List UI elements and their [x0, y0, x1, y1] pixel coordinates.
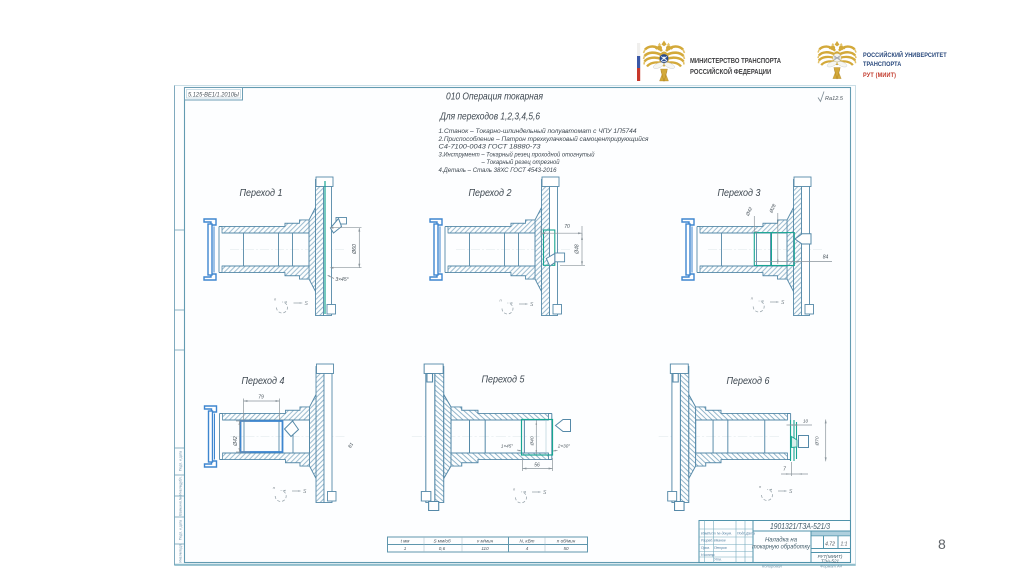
svg-text:3.Инструмент – Токарный резец: 3.Инструмент – Токарный резец проходной …: [439, 150, 595, 158]
svg-text:5.125-ВЕ1/1.2010Ы: 5.125-ВЕ1/1.2010Ы: [188, 93, 240, 99]
svg-text:Подп. и дата: Подп. и дата: [179, 451, 183, 471]
svg-text:84: 84: [823, 255, 829, 261]
svg-text:Для переходов 1,2,3,4,5,6: Для переходов 1,2,3,4,5,6: [439, 111, 540, 123]
svg-text:Пров.: Пров.: [701, 546, 710, 550]
svg-text:Подп.: Подп.: [737, 532, 746, 536]
svg-text:1.Станок – Токарно-шпиндельный: 1.Станок – Токарно-шпиндельный полуавтом…: [439, 127, 637, 135]
svg-text:Петров: Петров: [714, 546, 727, 550]
svg-text:Ra12.5: Ra12.5: [825, 96, 844, 102]
svg-text:010 Операция токарная: 010 Операция токарная: [446, 91, 543, 103]
svg-text:n об/мин: n об/мин: [557, 539, 576, 544]
svg-text:Лист: Лист: [706, 532, 716, 536]
svg-text:Утв.: Утв.: [714, 558, 722, 562]
svg-text:Иванов: Иванов: [714, 539, 726, 543]
svg-text:1: 1: [404, 546, 407, 551]
svg-text:С4-7100-0043 ГОСТ 18880-73: С4-7100-0043 ГОСТ 18880-73: [439, 144, 541, 151]
svg-text:Переход 3: Переход 3: [718, 187, 761, 199]
svg-text:Переход 4: Переход 4: [242, 375, 285, 387]
svg-text:t мм: t мм: [401, 539, 411, 544]
svg-text:Подп. и дата: Подп. и дата: [179, 520, 183, 540]
svg-text:1901321/ТЗА-521/3: 1901321/ТЗА-521/3: [770, 522, 830, 531]
svg-text:2×30°: 2×30°: [557, 444, 570, 449]
svg-text:Разраб.: Разраб.: [701, 539, 713, 543]
svg-text:10: 10: [803, 419, 809, 424]
svg-text:79: 79: [258, 395, 264, 401]
svg-text:Инв.№подл.: Инв.№подл.: [179, 543, 183, 562]
svg-text:Копировал: Копировал: [762, 564, 783, 569]
svg-text:70: 70: [564, 224, 570, 230]
svg-text:Переход 2: Переход 2: [469, 187, 512, 199]
svg-text:№ докум.: № докум.: [717, 532, 732, 536]
svg-text:1×45°: 1×45°: [501, 444, 513, 449]
svg-text:Формат А4: Формат А4: [820, 564, 843, 569]
svg-text:– Токарный резец отрезной: – Токарный резец отрезной: [481, 158, 560, 166]
svg-text:Ø42: Ø42: [233, 436, 239, 447]
svg-text:56: 56: [534, 463, 540, 469]
svg-text:Ø60: Ø60: [352, 244, 358, 255]
svg-text:Взам.инв.№: Взам.инв.№: [179, 496, 183, 515]
svg-text:Переход 6: Переход 6: [727, 375, 770, 387]
svg-text:2.Приспособление – Патрон трех: 2.Приспособление – Патрон трехкулачковый…: [438, 135, 649, 143]
svg-text:Ø48: Ø48: [575, 244, 581, 255]
svg-text:Переход 1: Переход 1: [240, 187, 283, 199]
svg-text:N, кВт: N, кВт: [520, 539, 535, 544]
svg-text:Н.контр.: Н.контр.: [701, 553, 715, 557]
svg-text:Дата: Дата: [745, 532, 755, 536]
svg-text:Инв.№дубл.: Инв.№дубл.: [179, 476, 183, 495]
svg-text:Наладка на: Наладка на: [765, 538, 798, 544]
svg-text:токарную обработку: токарную обработку: [752, 545, 811, 551]
svg-text:Ø40: Ø40: [530, 436, 536, 446]
svg-text:3×45°: 3×45°: [335, 277, 348, 283]
svg-text:v м/мин: v м/мин: [477, 539, 494, 544]
svg-text:50: 50: [563, 546, 569, 551]
svg-text:7: 7: [783, 467, 786, 473]
svg-text:Переход 5: Переход 5: [482, 374, 525, 386]
svg-text:1:1: 1:1: [841, 542, 848, 548]
svg-text:4: 4: [526, 546, 529, 551]
svg-text:4.Деталь – Сталь 38ХС ГОСТ 454: 4.Деталь – Сталь 38ХС ГОСТ 4543-2016: [439, 167, 557, 174]
svg-text:0,6: 0,6: [439, 546, 446, 551]
svg-text:110: 110: [481, 546, 489, 551]
svg-text:S мм/об: S мм/об: [433, 539, 450, 544]
svg-text:4.72: 4.72: [825, 542, 835, 548]
svg-text:Ø70: Ø70: [815, 436, 821, 446]
